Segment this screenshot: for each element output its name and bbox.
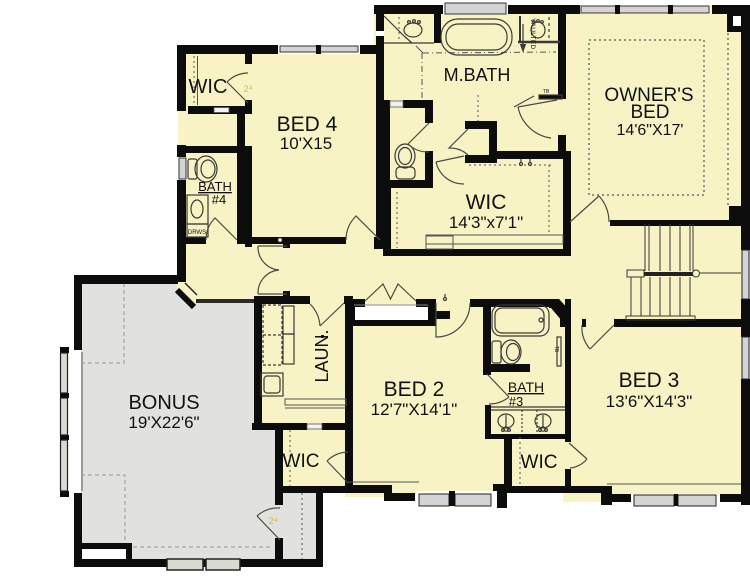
svg-text:BED 2: BED 2 [384, 378, 445, 401]
svg-text:10'X15: 10'X15 [280, 134, 332, 153]
svg-text:WIC: WIC [466, 191, 507, 214]
svg-text:14'3"x7'1": 14'3"x7'1" [449, 213, 523, 232]
svg-text:14'6"X17': 14'6"X17' [617, 122, 684, 139]
svg-text:BED: BED [630, 102, 669, 123]
svg-text:DRWS: DRWS [188, 230, 206, 236]
svg-text:WIC: WIC [521, 452, 558, 473]
svg-text:WIC: WIC [283, 451, 320, 472]
svg-text:M.BATH: M.BATH [444, 65, 511, 85]
svg-text:TB: TB [553, 346, 559, 353]
svg-text:WIC: WIC [189, 76, 228, 98]
svg-text:#3: #3 [509, 394, 523, 409]
svg-text:BED 3: BED 3 [619, 369, 680, 392]
svg-text:13'6"X14'3": 13'6"X14'3" [606, 392, 693, 411]
svg-text:VAULTED: VAULTED [529, 18, 536, 49]
svg-text:LAUN.: LAUN. [312, 329, 332, 382]
svg-text:TB: TB [543, 89, 550, 95]
svg-text:BED 4: BED 4 [277, 113, 338, 136]
svg-text:BONUS: BONUS [128, 392, 199, 414]
svg-text:12'7"X14'1": 12'7"X14'1" [371, 400, 458, 419]
svg-text:19'X22'6": 19'X22'6" [128, 413, 199, 432]
svg-text:BATH: BATH [508, 379, 544, 395]
svg-text:#4: #4 [212, 192, 226, 207]
